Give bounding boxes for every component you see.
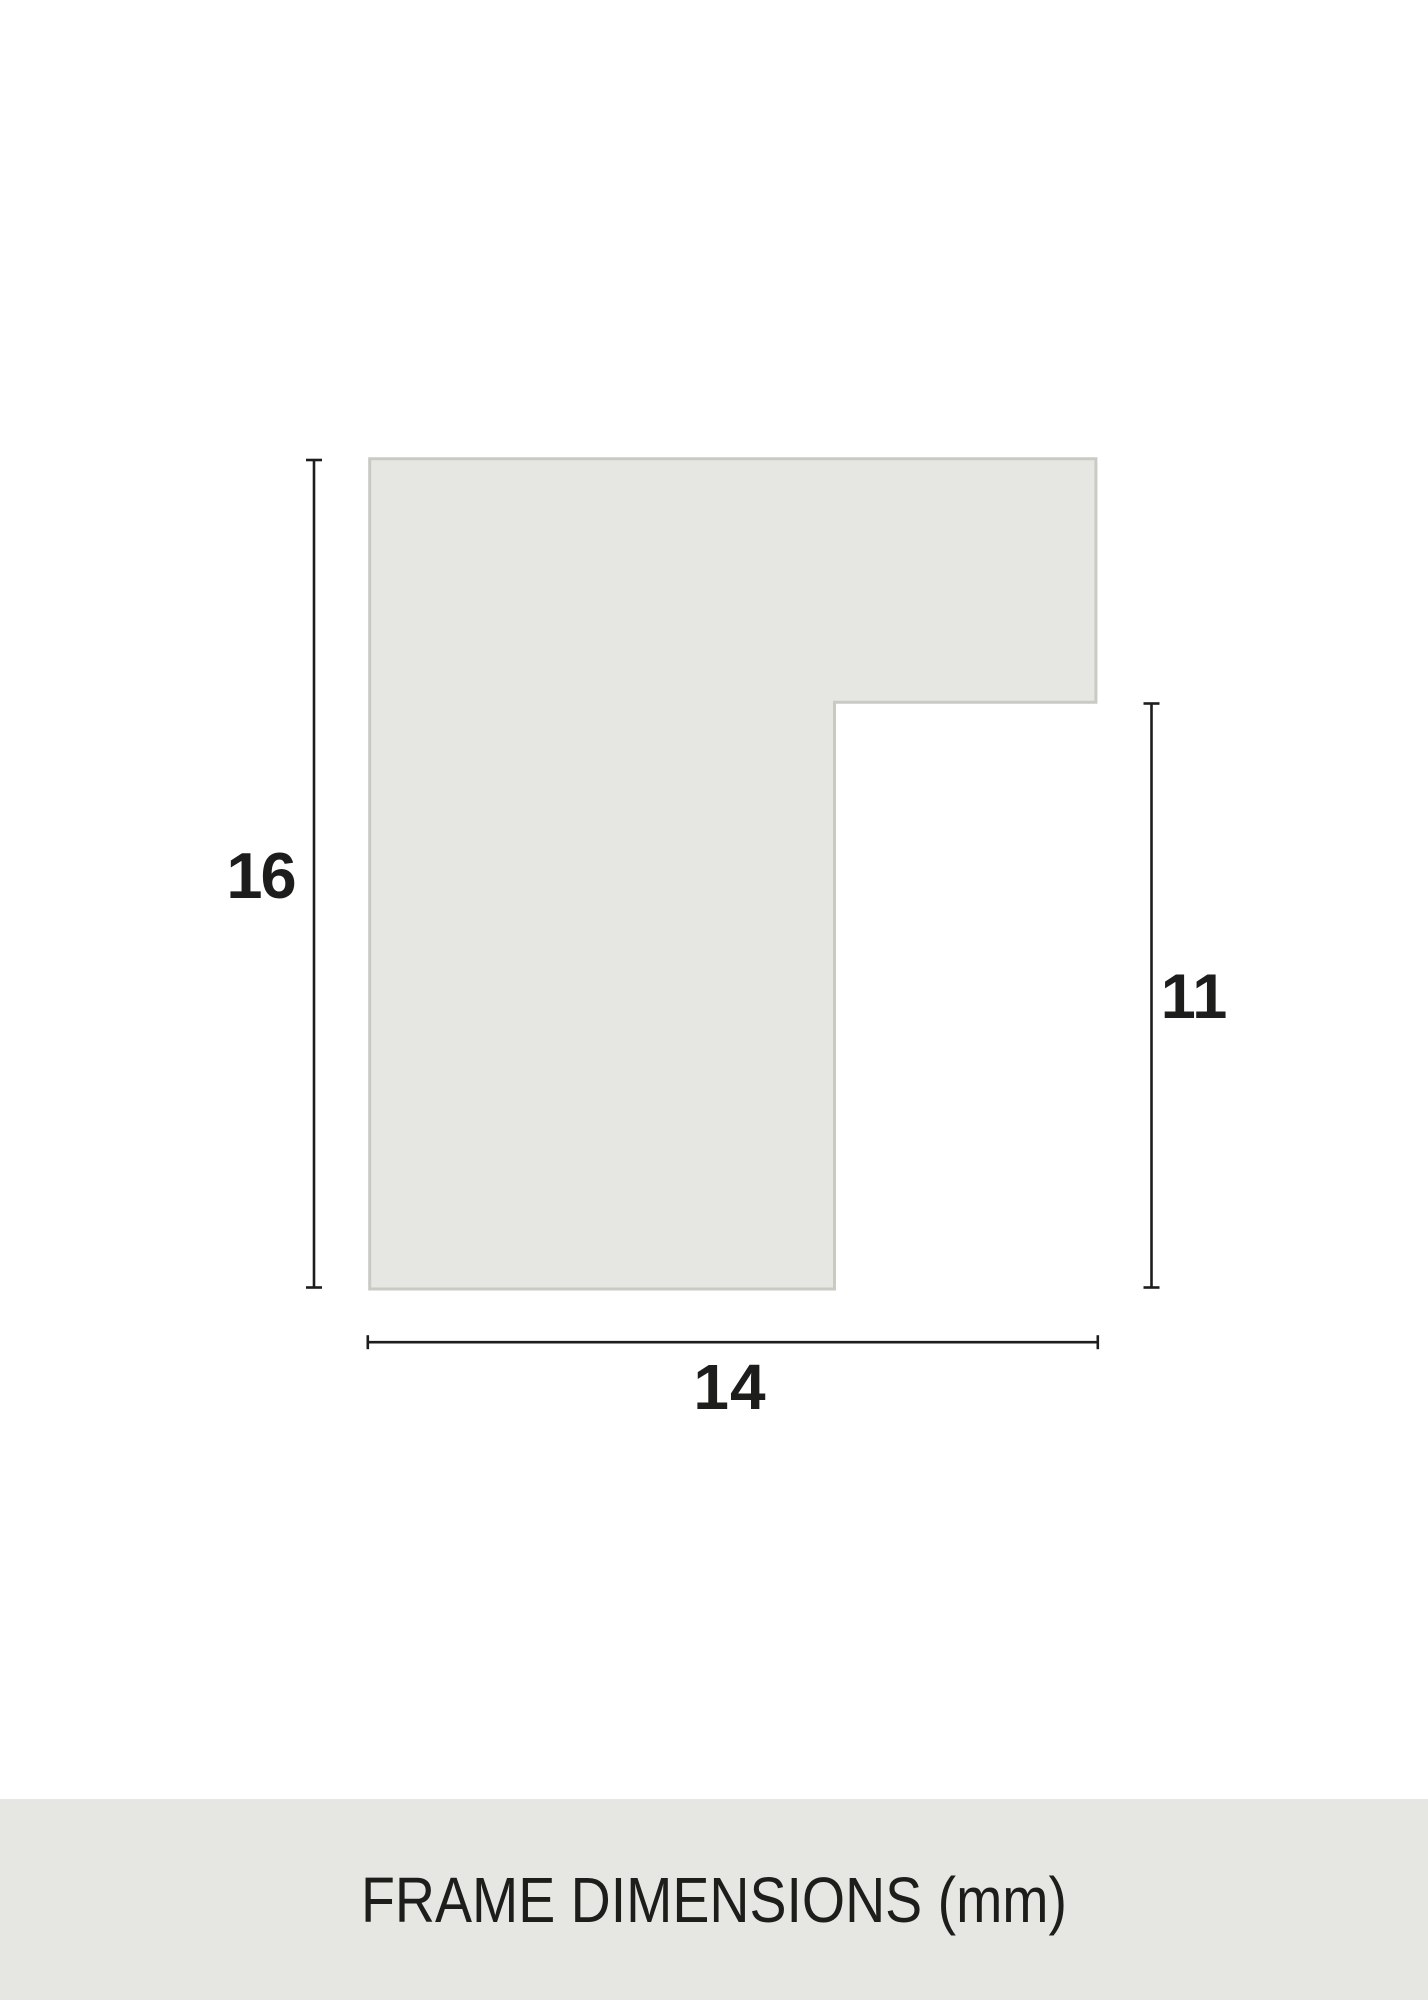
svg-text:16: 16 — [226, 839, 294, 912]
svg-text:11: 11 — [1161, 962, 1228, 1032]
svg-text:14: 14 — [693, 1351, 766, 1423]
svg-text:FRAME DIMENSIONS (mm): FRAME DIMENSIONS (mm) — [361, 1864, 1067, 1936]
